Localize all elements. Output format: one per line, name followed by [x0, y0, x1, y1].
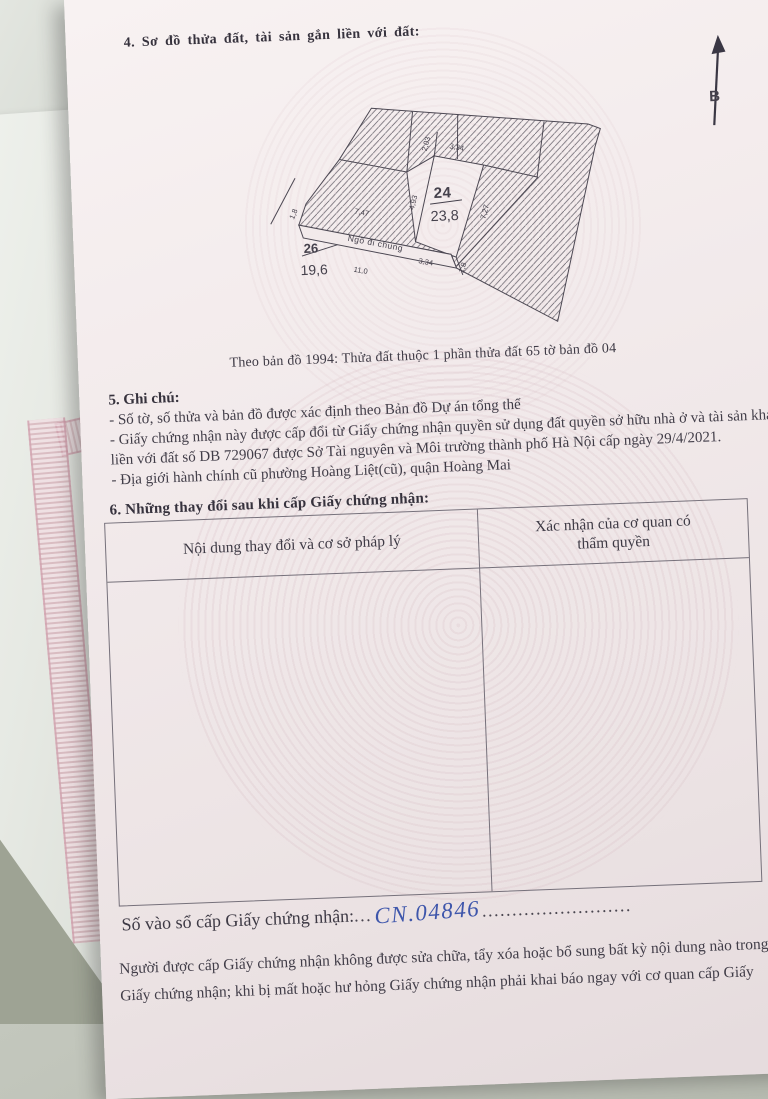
registry-dots-after: ......................... [482, 895, 633, 921]
table-cell-confirmation [480, 558, 761, 891]
dim-110: 11,0 [353, 265, 368, 276]
section5-heading: 5. Ghi chú: [108, 390, 180, 409]
table-cell-content [107, 568, 492, 905]
dim-left-18: 1,8 [287, 207, 299, 220]
changes-table: Nội dung thay đổi và cơ sở pháp lý Xác n… [104, 498, 762, 906]
table-empty-row [107, 558, 761, 905]
north-arrow: B [696, 32, 740, 133]
registry-number-handwritten: CN.04846 [373, 896, 481, 930]
plot24-area: 23,8 [430, 208, 459, 225]
footer-warning: Người được cấp Giấy chứng nhận không đượ… [119, 922, 768, 1010]
north-arrow-head [711, 35, 726, 55]
dim-bottom-334: 3,34 [418, 256, 434, 268]
certificate-page: 4. Sơ đồ thửa đất, tài sản gắn liền với … [64, 0, 768, 1099]
plot24-number: 24 [433, 184, 451, 202]
registry-dots-before: ... [354, 905, 373, 926]
plot26-number: 26 [303, 240, 318, 256]
registry-label: Số vào sổ cấp Giấy chứng nhận: [121, 906, 354, 935]
table-header-confirmation: Xác nhận của cơ quan có thẩm quyền [478, 499, 749, 567]
north-label: B [709, 88, 721, 105]
cadastral-sketch: 24 23,8 26 19,6 Ngõ đi chung 3,34 2,03 4… [254, 79, 624, 363]
plot26-area: 19,6 [300, 261, 328, 278]
